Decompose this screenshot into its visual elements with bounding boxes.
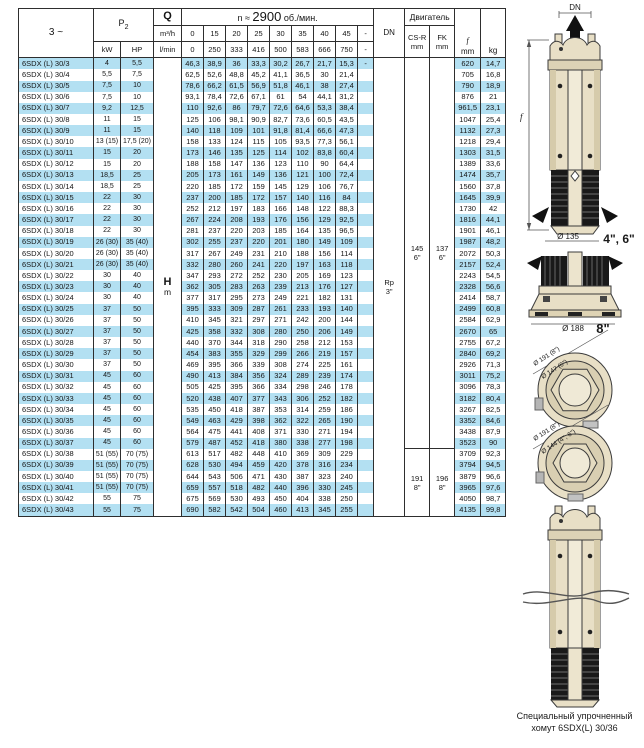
f-dim-label: f [520,112,524,122]
head-value-cell: 332 [182,259,204,270]
head-value-cell: 271 [270,315,292,326]
head-value-cell: 246 [314,382,336,393]
dash-cell [358,304,374,315]
head-value-cell: 61,5 [226,81,248,92]
head-value-cell: 221 [292,292,314,303]
dash-cell [358,170,374,181]
head-value-cell: 140 [182,125,204,136]
head-value-cell: 123 [336,270,358,281]
head-value-cell: 51,8 [270,81,292,92]
f-cell: 3794 [455,460,481,471]
model-cell: 6SDX (L) 30/18 [19,226,94,237]
head-value-cell: 557 [204,482,226,493]
hp-cell: 75 [121,493,154,504]
hp-cell: 50 [121,326,154,337]
head-value-cell: 135 [314,226,336,237]
head-value-cell: 308 [248,326,270,337]
header-flow-lmin-8: - [358,42,374,58]
head-value-cell: 101 [248,125,270,136]
head-value-cell: 543 [204,471,226,482]
body-shading [594,70,600,170]
head-value-cell: 628 [182,460,204,471]
head-value-cell: 377 [248,393,270,404]
hp-cell: 75 [121,504,154,516]
model-cell: 6SDX (L) 30/5 [19,81,94,92]
dash-cell [358,426,374,437]
header-q: Q [154,9,182,26]
kw-cell: 9,2 [94,103,121,114]
kw-cell: 18,5 [94,170,121,181]
kg-cell: 69,2 [481,348,506,359]
d188-label: Ø 188 [562,324,584,333]
head-value-cell: 200 [204,192,226,203]
head-value-cell: 332 [226,326,248,337]
head-value-cell: 127 [336,281,358,292]
hp-cell: 20 [121,147,154,158]
dash-cell [358,192,374,203]
hp-cell: 60 [121,393,154,404]
kw-cell: 51 (55) [94,471,121,482]
head-value-cell: 213 [292,281,314,292]
f-cell: 3523 [455,438,481,449]
kg-cell: 90 [481,438,506,449]
hp-cell: 50 [121,348,154,359]
head-value-cell: 180 [292,237,314,248]
head-value-cell: 318 [248,337,270,348]
head-value-cell: 271 [314,426,336,437]
head-value-cell: 220 [226,226,248,237]
head-value-cell: 322 [292,415,314,426]
head-value-cell: 353 [270,404,292,415]
head-value-cell: 197 [226,203,248,214]
model-cell: 6SDX (L) 30/31 [19,371,94,382]
dash-cell [358,181,374,192]
model-cell: 6SDX (L) 30/33 [19,393,94,404]
head-value-cell: 60,4 [336,147,358,158]
bolt [588,154,593,159]
head-value-cell: 452 [226,438,248,449]
head-value-cell: 229 [336,449,358,460]
header-flow-lmin-2: 333 [226,42,248,58]
head-value-cell: 219 [314,348,336,359]
dash-cell [358,103,374,114]
hp-cell: 40 [121,281,154,292]
head-value-cell: 252 [182,203,204,214]
hp-cell: 30 [121,203,154,214]
kg-cell: 52,4 [481,259,506,270]
kw-cell: 5,5 [94,69,121,80]
head-value-cell: 277 [314,438,336,449]
model-cell: 6SDX (L) 30/19 [19,237,94,248]
head-value-cell: 183 [248,203,270,214]
kg-cell: 44,1 [481,214,506,225]
model-cell: 6SDX (L) 30/38 [19,449,94,460]
head-value-cell: 185 [226,192,248,203]
head-value-cell: 118 [204,125,226,136]
bolt [558,84,563,89]
head-value-cell: 220 [270,259,292,270]
hp-cell: 10 [121,81,154,92]
head-value-cell: 92,5 [336,214,358,225]
dash-cell [358,493,374,504]
head-value-cell: 163 [314,259,336,270]
head-value-cell: 377 [182,292,204,303]
kw-cell: 15 [94,159,121,170]
header-speed: n ≈ 2900 об./мин. [182,9,374,26]
head-value-cell: 212 [314,337,336,348]
head-value-cell: 45,2 [248,69,270,80]
hp-cell: 70 (75) [121,471,154,482]
f-cell: 3352 [455,415,481,426]
head-value-cell: 425 [204,382,226,393]
kg-cell: 31,5 [481,147,506,158]
top-view-circle-1: Ø 191 (8") Ø 147 (6") [532,330,612,428]
dash-cell [358,315,374,326]
head-value-cell: 387 [292,471,314,482]
head-value-cell: 690 [182,504,204,516]
kg-cell: 54,5 [481,270,506,281]
header-flow-m3h-6: 40 [314,26,336,42]
head-value-cell: 425 [182,326,204,337]
kw-cell: 37 [94,326,121,337]
dash-cell [358,504,374,516]
dash-cell [358,359,374,370]
f-cell: 3965 [455,482,481,493]
head-value-cell: 579 [182,438,204,449]
header-q-unit-m3h: m³/h [154,26,182,42]
kg-cell: 48,2 [481,237,506,248]
kw-cell: 45 [94,415,121,426]
kw-cell: 11 [94,114,121,125]
head-value-cell: 293 [204,270,226,281]
dash-cell [358,393,374,404]
head-value-cell: 362 [270,415,292,426]
suction-pipe [568,648,582,702]
f-cell: 1303 [455,147,481,158]
head-value-cell: 124 [226,136,248,147]
head-value-cell: 345 [204,315,226,326]
head-value-cell: 237 [226,237,248,248]
head-value-cell: 178 [336,382,358,393]
head-value-cell: 109 [226,125,248,136]
header-flow-lmin-1: 250 [204,42,226,58]
head-value-cell: 164 [292,226,314,237]
head-value-cell: 252 [314,393,336,404]
kw-cell: 45 [94,438,121,449]
head-value-cell: 675 [182,493,204,504]
head-flange [548,530,602,540]
head-value-cell: 133 [204,136,226,147]
head-value-cell: 371 [270,426,292,437]
head-value-cell: 482 [226,449,248,460]
fk-8in-cell: 1968" [430,449,455,517]
dash-cell [358,136,374,147]
head-value-cell: 15,3 [336,58,358,70]
hp-cell: 50 [121,315,154,326]
f-cell: 3267 [455,404,481,415]
f-cell: 1645 [455,192,481,203]
head-value-cell: 384 [226,371,248,382]
f-cell: 2243 [455,270,481,281]
head-value-cell: 308 [270,359,292,370]
head-value-cell: 582 [204,504,226,516]
model-cell: 6SDX (L) 30/34 [19,404,94,415]
head-value-cell: 430 [270,471,292,482]
head-value-cell: 255 [336,504,358,516]
head-value-cell: 395 [226,382,248,393]
head-value-cell: 140 [292,192,314,203]
head-value-cell: 157 [336,348,358,359]
head-value-cell: 146 [204,147,226,158]
head-value-cell: 220 [248,237,270,248]
head-value-cell: 136 [270,170,292,181]
bolt [558,554,563,559]
kg-cell: 67,2 [481,337,506,348]
head-value-cell: 460 [270,504,292,516]
inlet-arrow-left-icon [527,256,542,270]
head-value-cell: 105 [270,136,292,147]
dash-cell [358,81,374,92]
dash-cell [358,415,374,426]
head-value-cell: 182 [314,292,336,303]
head-value-cell: 194 [336,426,358,437]
head-value-cell: 161 [226,170,248,181]
kg-cell: 97,6 [481,482,506,493]
kw-cell: 45 [94,371,121,382]
f-cell: 4135 [455,504,481,516]
header-flow-m3h-4: 30 [270,26,292,42]
hp-cell: 60 [121,426,154,437]
f-cell: 2157 [455,259,481,270]
head-value-cell: 83,8 [314,147,336,158]
pump-spec-table-wrap: 3 ~P2Qn ≈ 2900 об./мин.DNДвигательfmmkgm… [18,8,506,517]
f-cell: 1560 [455,181,481,192]
header-kw: kW [94,42,121,58]
header-flow-m3h-5: 35 [292,26,314,42]
head-value-cell: 66,6 [314,125,336,136]
hp-cell: 12,5 [121,103,154,114]
h-m-merged-cell: Hm [154,58,182,517]
head-value-cell: 252 [248,270,270,281]
f-cell: 790 [455,81,481,92]
head-value-cell: 72,6 [226,92,248,103]
head-value-cell: 30 [314,69,336,80]
header-motor: Двигатель [405,9,455,26]
bore [559,374,591,406]
f-cell: 2926 [455,359,481,370]
header-phase: 3 ~ [19,9,94,58]
f-cell: 1474 [455,170,481,181]
inlet-arrow-right-icon [608,256,623,270]
head-value-cell: 198 [336,438,358,449]
head-value-cell: 418 [226,404,248,415]
kg-cell: 46,1 [481,226,506,237]
dash-cell [358,292,374,303]
model-cell: 6SDX (L) 30/22 [19,270,94,281]
head-value-cell: 121 [292,170,314,181]
hp-cell: 30 [121,192,154,203]
f-cell: 1132 [455,125,481,136]
head-detail [559,47,563,51]
dash-cell [358,337,374,348]
head-value-cell: 396 [292,482,314,493]
kw-cell: 22 [94,192,121,203]
f-cell: 876 [455,92,481,103]
kw-cell: 22 [94,226,121,237]
kg-cell: 27,3 [481,125,506,136]
head-value-cell: 469 [182,359,204,370]
kw-cell: 22 [94,203,121,214]
pump-head [550,38,600,63]
dash-cell [358,471,374,482]
head-value-cell: 82,7 [270,114,292,125]
head-value-cell: 153 [336,337,358,348]
head-value-cell: 161 [336,359,358,370]
header-flow-lmin-7: 750 [336,42,358,58]
head-value-cell: 84 [336,192,358,203]
kw-cell: 45 [94,404,121,415]
kg-cell: 87,9 [481,426,506,437]
head-value-cell: 210 [270,248,292,259]
kw-cell: 13 (15) [94,136,121,147]
head-value-cell: 172 [226,181,248,192]
head-value-cell: 487 [204,438,226,449]
head-value-cell: 33,3 [248,58,270,70]
bore [560,448,590,478]
dash-cell [358,438,374,449]
f-cell: 3182 [455,393,481,404]
kg-cell: 65 [481,326,506,337]
head-value-cell: 317 [204,292,226,303]
head-value-cell: 265 [314,415,336,426]
base-foot [602,312,615,316]
head-value-cell: 249 [226,248,248,259]
kg-cell: 29,4 [481,136,506,147]
head-value-cell: 245 [336,482,358,493]
head-value-cell: 38,4 [336,103,358,114]
head-value-cell: 114 [336,248,358,259]
head-value-cell: 506 [226,471,248,482]
head-value-cell: 205 [292,270,314,281]
head-value-cell: 398 [248,415,270,426]
dash-cell [358,237,374,248]
head-value-cell: 92,6 [204,103,226,114]
head-value-cell: 404 [292,493,314,504]
hp-cell: 20 [121,159,154,170]
model-cell: 6SDX (L) 30/6 [19,92,94,103]
pump-clamp-drawing [523,506,629,707]
head-value-cell: 220 [182,181,204,192]
head-value-cell: 281 [182,226,204,237]
kw-cell: 4 [94,58,121,70]
head-value-cell: 520 [182,393,204,404]
head-value-cell: 93,5 [292,136,314,147]
header-csr: CS-Rmm [405,26,430,58]
model-cell: 6SDX (L) 30/25 [19,304,94,315]
hp-cell: 60 [121,382,154,393]
head-value-cell: 90,9 [248,114,270,125]
head-value-cell: 475 [204,426,226,437]
model-cell: 6SDX (L) 30/30 [19,359,94,370]
f-cell: 961,5 [455,103,481,114]
head-value-cell: 267 [204,248,226,259]
dash-cell [358,404,374,415]
head-value-cell: 413 [204,371,226,382]
pump-head [550,510,600,533]
head-value-cell: 267 [182,214,204,225]
head-value-cell: 100 [314,170,336,181]
f-cell: 1987 [455,237,481,248]
head-detail [559,519,563,523]
head-value-cell: 239 [314,371,336,382]
pump-table: 3 ~P2Qn ≈ 2900 об./мин.DNДвигательfmmkgm… [18,8,506,517]
kg-cell: 96,6 [481,471,506,482]
model-cell: 6SDX (L) 30/20 [19,248,94,259]
kg-cell: 50,3 [481,248,506,259]
head-value-cell: 316 [314,460,336,471]
kw-cell: 37 [94,348,121,359]
f-cell: 1389 [455,159,481,170]
header-flow-lmin-3: 416 [248,42,270,58]
head-value-cell: 263 [248,281,270,292]
head-value-cell: 370 [204,337,226,348]
dash-cell [358,259,374,270]
head-value-cell: 56,1 [336,136,358,147]
head-value-cell: 88,3 [336,203,358,214]
head-value-cell: 166 [270,203,292,214]
kw-cell: 55 [94,504,121,516]
head-value-cell: 317 [182,248,204,259]
hp-cell: 5,5 [121,58,154,70]
model-cell: 6SDX (L) 30/3 [19,58,94,70]
flow-arrow-up-icon [566,15,584,31]
header-f: fmm [455,9,481,58]
head-value-cell: 148 [292,203,314,214]
head-value-cell: 250 [292,326,314,337]
f-cell: 2584 [455,315,481,326]
head-value-cell: 309 [314,449,336,460]
head-value-cell: 185 [270,226,292,237]
head-value-cell: 114 [270,147,292,158]
head-value-cell: 78,6 [182,81,204,92]
head-value-cell: 530 [204,460,226,471]
head-value-cell: 297 [248,315,270,326]
header-flow-lmin-5: 583 [292,42,314,58]
head-value-cell: 302 [182,237,204,248]
dash-cell [358,203,374,214]
head-value-cell: 237 [204,226,226,237]
head-value-cell: 122 [314,203,336,214]
head-value-cell: 659 [182,482,204,493]
hp-cell: 60 [121,404,154,415]
head-value-cell: 36,5 [292,69,314,80]
head-value-cell: 240 [336,471,358,482]
dash-cell [358,226,374,237]
hp-cell: 30 [121,226,154,237]
head-value-cell: 174 [336,371,358,382]
head-flange [548,60,602,70]
head-value-cell: 569 [204,493,226,504]
header-flow-m3h-2: 20 [226,26,248,42]
dash-cell [358,114,374,125]
head-value-cell: 118 [336,259,358,270]
head-value-cell: 149 [314,237,336,248]
kw-cell: 18,5 [94,181,121,192]
head-value-cell: 56,9 [248,81,270,92]
dash-cell [358,281,374,292]
kg-cell: 75,2 [481,371,506,382]
header-flow-lmin-0: 0 [182,42,204,58]
